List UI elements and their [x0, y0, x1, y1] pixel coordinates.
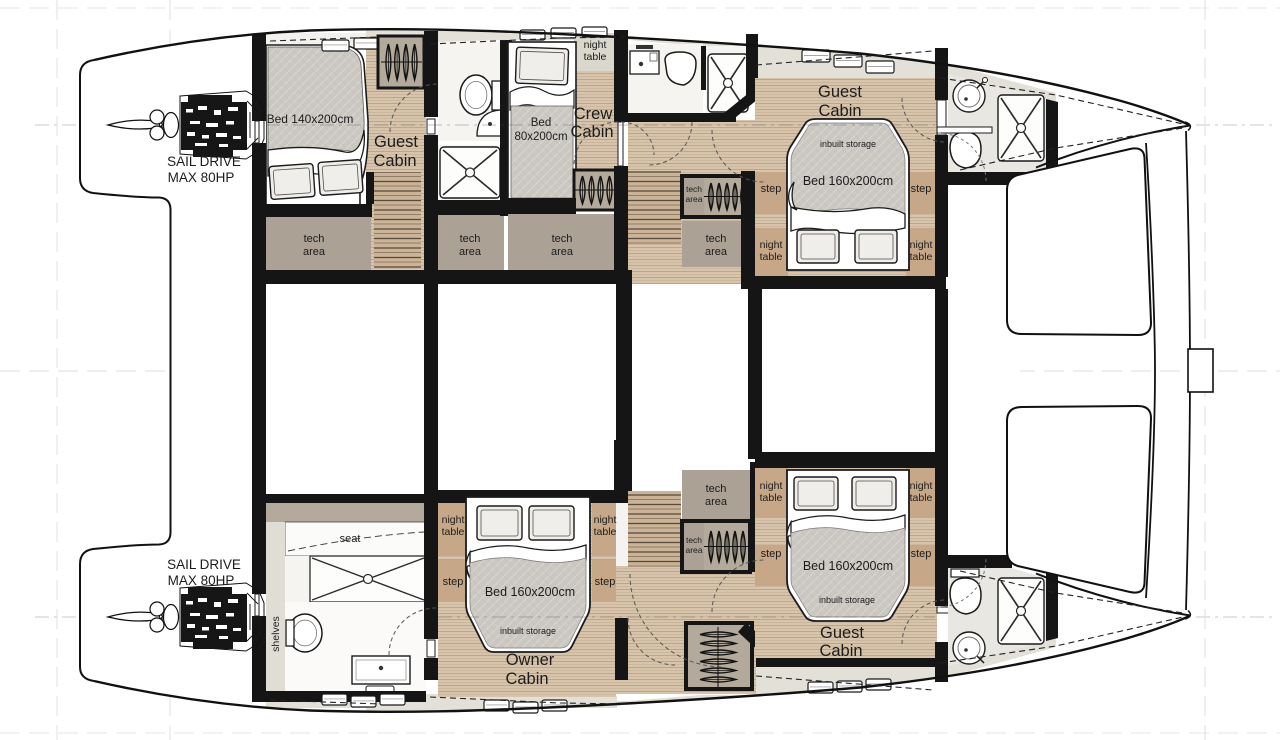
svg-text:inbuilt storage: inbuilt storage — [820, 139, 876, 149]
svg-text:Bed 160x200cm: Bed 160x200cm — [803, 559, 893, 573]
svg-text:night: night — [594, 514, 617, 526]
svg-text:table: table — [442, 526, 465, 538]
svg-text:area: area — [705, 246, 728, 258]
svg-text:area: area — [685, 194, 702, 204]
svg-text:night: night — [760, 239, 783, 251]
svg-text:Guest: Guest — [818, 83, 862, 101]
svg-text:inbuilt storage: inbuilt storage — [819, 595, 875, 605]
svg-text:Bed: Bed — [531, 117, 551, 129]
svg-text:Cabin: Cabin — [570, 123, 613, 141]
svg-text:night: night — [910, 239, 933, 251]
svg-text:area: area — [685, 545, 702, 555]
svg-text:inbuilt storage: inbuilt storage — [500, 626, 556, 636]
svg-text:step: step — [443, 576, 464, 588]
svg-text:area: area — [705, 496, 728, 508]
svg-text:night: night — [442, 514, 465, 526]
svg-text:shelves: shelves — [270, 616, 282, 652]
svg-text:Guest: Guest — [820, 624, 864, 642]
svg-text:night: night — [760, 480, 783, 492]
svg-text:Cabin: Cabin — [818, 102, 861, 120]
svg-text:step: step — [911, 183, 932, 195]
svg-text:table: table — [910, 251, 933, 263]
svg-text:step: step — [911, 548, 932, 560]
svg-text:table: table — [760, 251, 783, 263]
svg-text:Cabin: Cabin — [373, 152, 416, 170]
svg-text:step: step — [761, 183, 782, 195]
svg-text:Owner: Owner — [506, 651, 555, 669]
svg-text:SAIL DRIVE: SAIL DRIVE — [167, 557, 241, 572]
svg-text:tech: tech — [706, 483, 727, 495]
svg-text:area: area — [303, 246, 326, 258]
svg-text:SAIL DRIVE: SAIL DRIVE — [167, 154, 241, 169]
svg-text:tech: tech — [304, 233, 325, 245]
svg-text:step: step — [761, 548, 782, 560]
svg-text:area: area — [459, 246, 482, 258]
svg-text:night: night — [910, 480, 933, 492]
svg-text:Bed 160x200cm: Bed 160x200cm — [485, 585, 575, 599]
svg-text:Bed 140x200cm: Bed 140x200cm — [267, 112, 354, 126]
svg-text:tech: tech — [552, 233, 573, 245]
svg-text:Bed 160x200cm: Bed 160x200cm — [803, 174, 893, 188]
svg-text:tech: tech — [460, 233, 481, 245]
svg-text:MAX 80HP: MAX 80HP — [168, 573, 235, 588]
svg-text:step: step — [595, 576, 616, 588]
svg-text:table: table — [584, 51, 607, 63]
svg-text:MAX 80HP: MAX 80HP — [168, 170, 235, 185]
svg-text:80x200cm: 80x200cm — [514, 131, 567, 143]
svg-text:Guest: Guest — [374, 133, 418, 151]
svg-text:table: table — [594, 526, 617, 538]
svg-text:table: table — [910, 492, 933, 504]
svg-text:tech: tech — [706, 233, 727, 245]
svg-text:table: table — [760, 492, 783, 504]
svg-text:Cabin: Cabin — [505, 670, 548, 688]
svg-text:tech: tech — [686, 184, 702, 194]
svg-text:night: night — [584, 39, 607, 51]
svg-text:Crew: Crew — [574, 105, 613, 123]
svg-text:area: area — [551, 246, 574, 258]
svg-text:Cabin: Cabin — [819, 642, 862, 660]
svg-text:tech: tech — [686, 535, 702, 545]
